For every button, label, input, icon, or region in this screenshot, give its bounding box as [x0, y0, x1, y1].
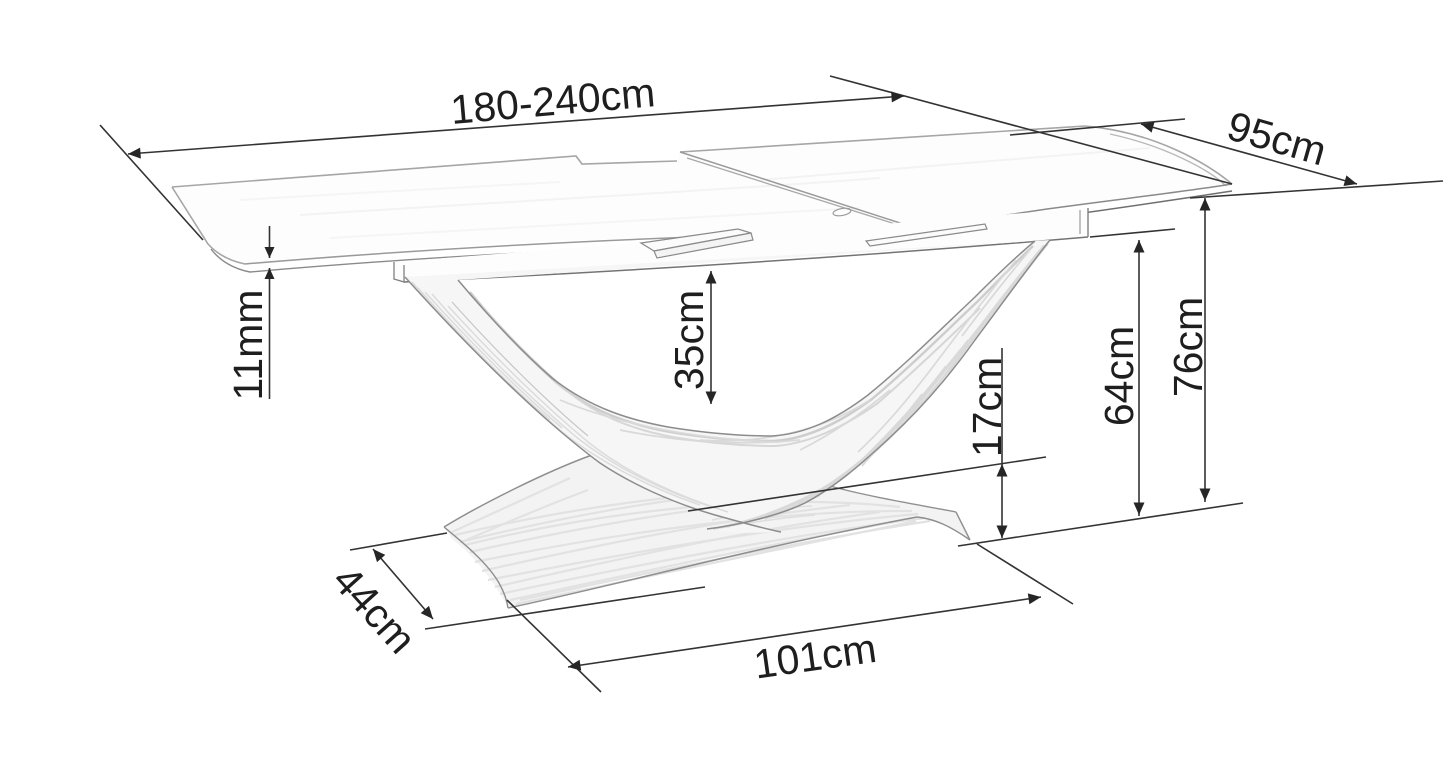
- svg-text:17cm: 17cm: [964, 357, 1010, 457]
- svg-text:11mm: 11mm: [225, 290, 271, 401]
- svg-text:76cm: 76cm: [1165, 297, 1211, 397]
- svg-text:64cm: 64cm: [1096, 326, 1142, 426]
- svg-text:35cm: 35cm: [666, 290, 712, 390]
